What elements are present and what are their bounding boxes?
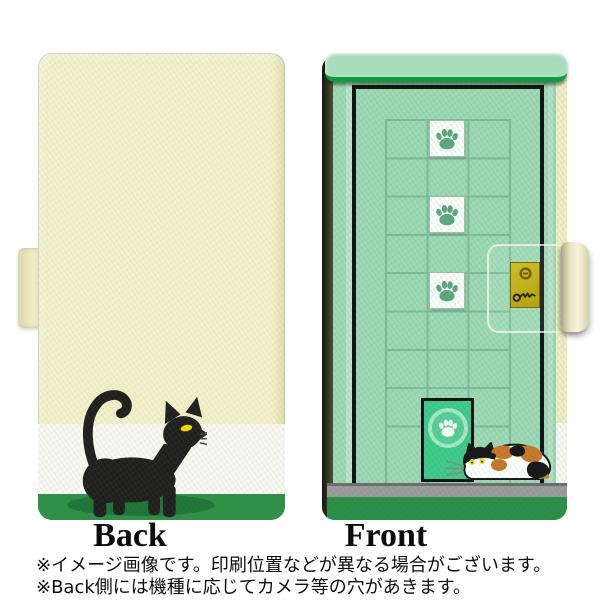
paw-tile: [429, 120, 465, 157]
spine-white-stripe: [556, 423, 567, 483]
calico-cat-illustration: [444, 434, 554, 486]
paw-tile: [429, 272, 465, 309]
back-label: Back: [55, 517, 205, 555]
keyhole-icon: [518, 266, 533, 281]
paw-icon: [434, 126, 460, 152]
paw-icon: [434, 202, 460, 228]
key-icon: [512, 288, 538, 304]
whiskers: [445, 461, 464, 475]
black-cat-illustration: [70, 387, 207, 520]
paw-icon: [434, 278, 460, 304]
door-frame-left: [352, 85, 356, 483]
case-back-view: [38, 53, 285, 520]
clasp-strap-band: [561, 242, 589, 332]
case-left-edge: [322, 56, 333, 520]
door-awning: [325, 53, 567, 82]
front-label: Front: [311, 517, 461, 555]
door-frame-top: [352, 85, 544, 89]
footnote-line-1: ※イメージ画像です。印刷位置などが異なる場合がございます。: [36, 555, 588, 576]
magnet-lock-plate: [510, 262, 540, 308]
paw-tile: [429, 196, 465, 233]
footnote-line-2: ※Back側には機種に応じてカメラ等の穴があきます。: [36, 577, 588, 598]
product-image: Back Front ※イメージ画像です。印刷位置などが異なる場合がございます。…: [0, 0, 600, 600]
